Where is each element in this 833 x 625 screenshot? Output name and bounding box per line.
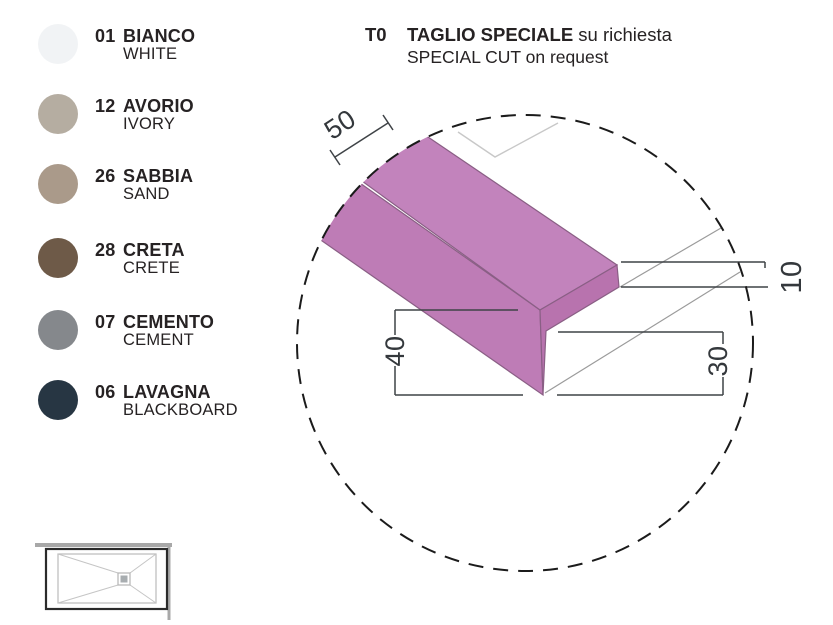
dimension-top-width: 50 [319, 103, 393, 165]
tray-corner-ghost-outline [458, 123, 558, 157]
dimension-lower-height: 30 [557, 332, 733, 395]
dim-label-40: 40 [380, 335, 410, 366]
shower-tray-plan-icon [20, 530, 180, 625]
dim-label-30: 30 [703, 345, 733, 376]
dim-label-10: 10 [776, 260, 808, 293]
tray-outer-rect [46, 549, 167, 609]
dim-label-50: 50 [319, 103, 361, 145]
cut-profile-shape [315, 118, 619, 395]
dimension-thickness: 10 [621, 260, 808, 293]
drain-icon [121, 576, 128, 583]
edge-continuation-line-upper [620, 228, 721, 287]
